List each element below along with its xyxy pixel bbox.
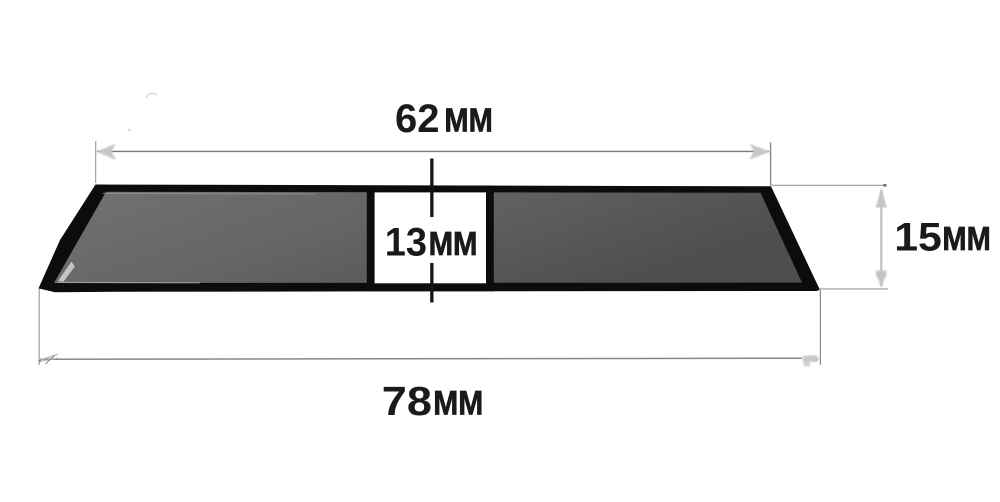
svg-text:MM: MM	[433, 384, 483, 422]
svg-text:13: 13	[385, 221, 427, 265]
svg-text:15: 15	[894, 215, 942, 259]
svg-text:62: 62	[395, 97, 440, 141]
svg-text:MM: MM	[429, 225, 478, 262]
svg-text:MM: MM	[942, 220, 990, 257]
svg-text:78: 78	[382, 379, 432, 425]
svg-text:MM: MM	[444, 102, 492, 139]
